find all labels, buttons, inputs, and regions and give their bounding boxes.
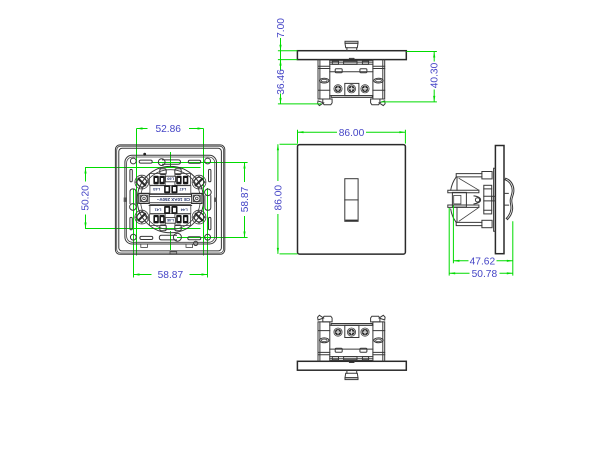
svg-text:CE 10AX 250V~: CE 10AX 250V~: [156, 197, 190, 202]
svg-text:86.00: 86.00: [273, 185, 284, 211]
svg-text:86.00: 86.00: [339, 128, 365, 139]
svg-text:L46: L46: [166, 218, 174, 223]
svg-text:L44: L44: [180, 207, 188, 212]
svg-text:7.00: 7.00: [276, 18, 287, 38]
svg-text:36.46: 36.46: [276, 69, 287, 95]
svg-text:40.30: 40.30: [429, 62, 440, 88]
svg-text:L47: L47: [179, 187, 186, 192]
svg-text:58.87: 58.87: [240, 186, 251, 212]
svg-text:L41: L41: [154, 207, 162, 212]
svg-text:50.20: 50.20: [80, 185, 91, 211]
svg-text:52.86: 52.86: [155, 124, 181, 135]
svg-text:47.62: 47.62: [470, 257, 496, 268]
svg-text:L60: L60: [167, 177, 174, 182]
svg-text:58.87: 58.87: [158, 270, 184, 281]
svg-text:L43: L43: [152, 187, 160, 192]
svg-text:50.78: 50.78: [472, 269, 498, 280]
